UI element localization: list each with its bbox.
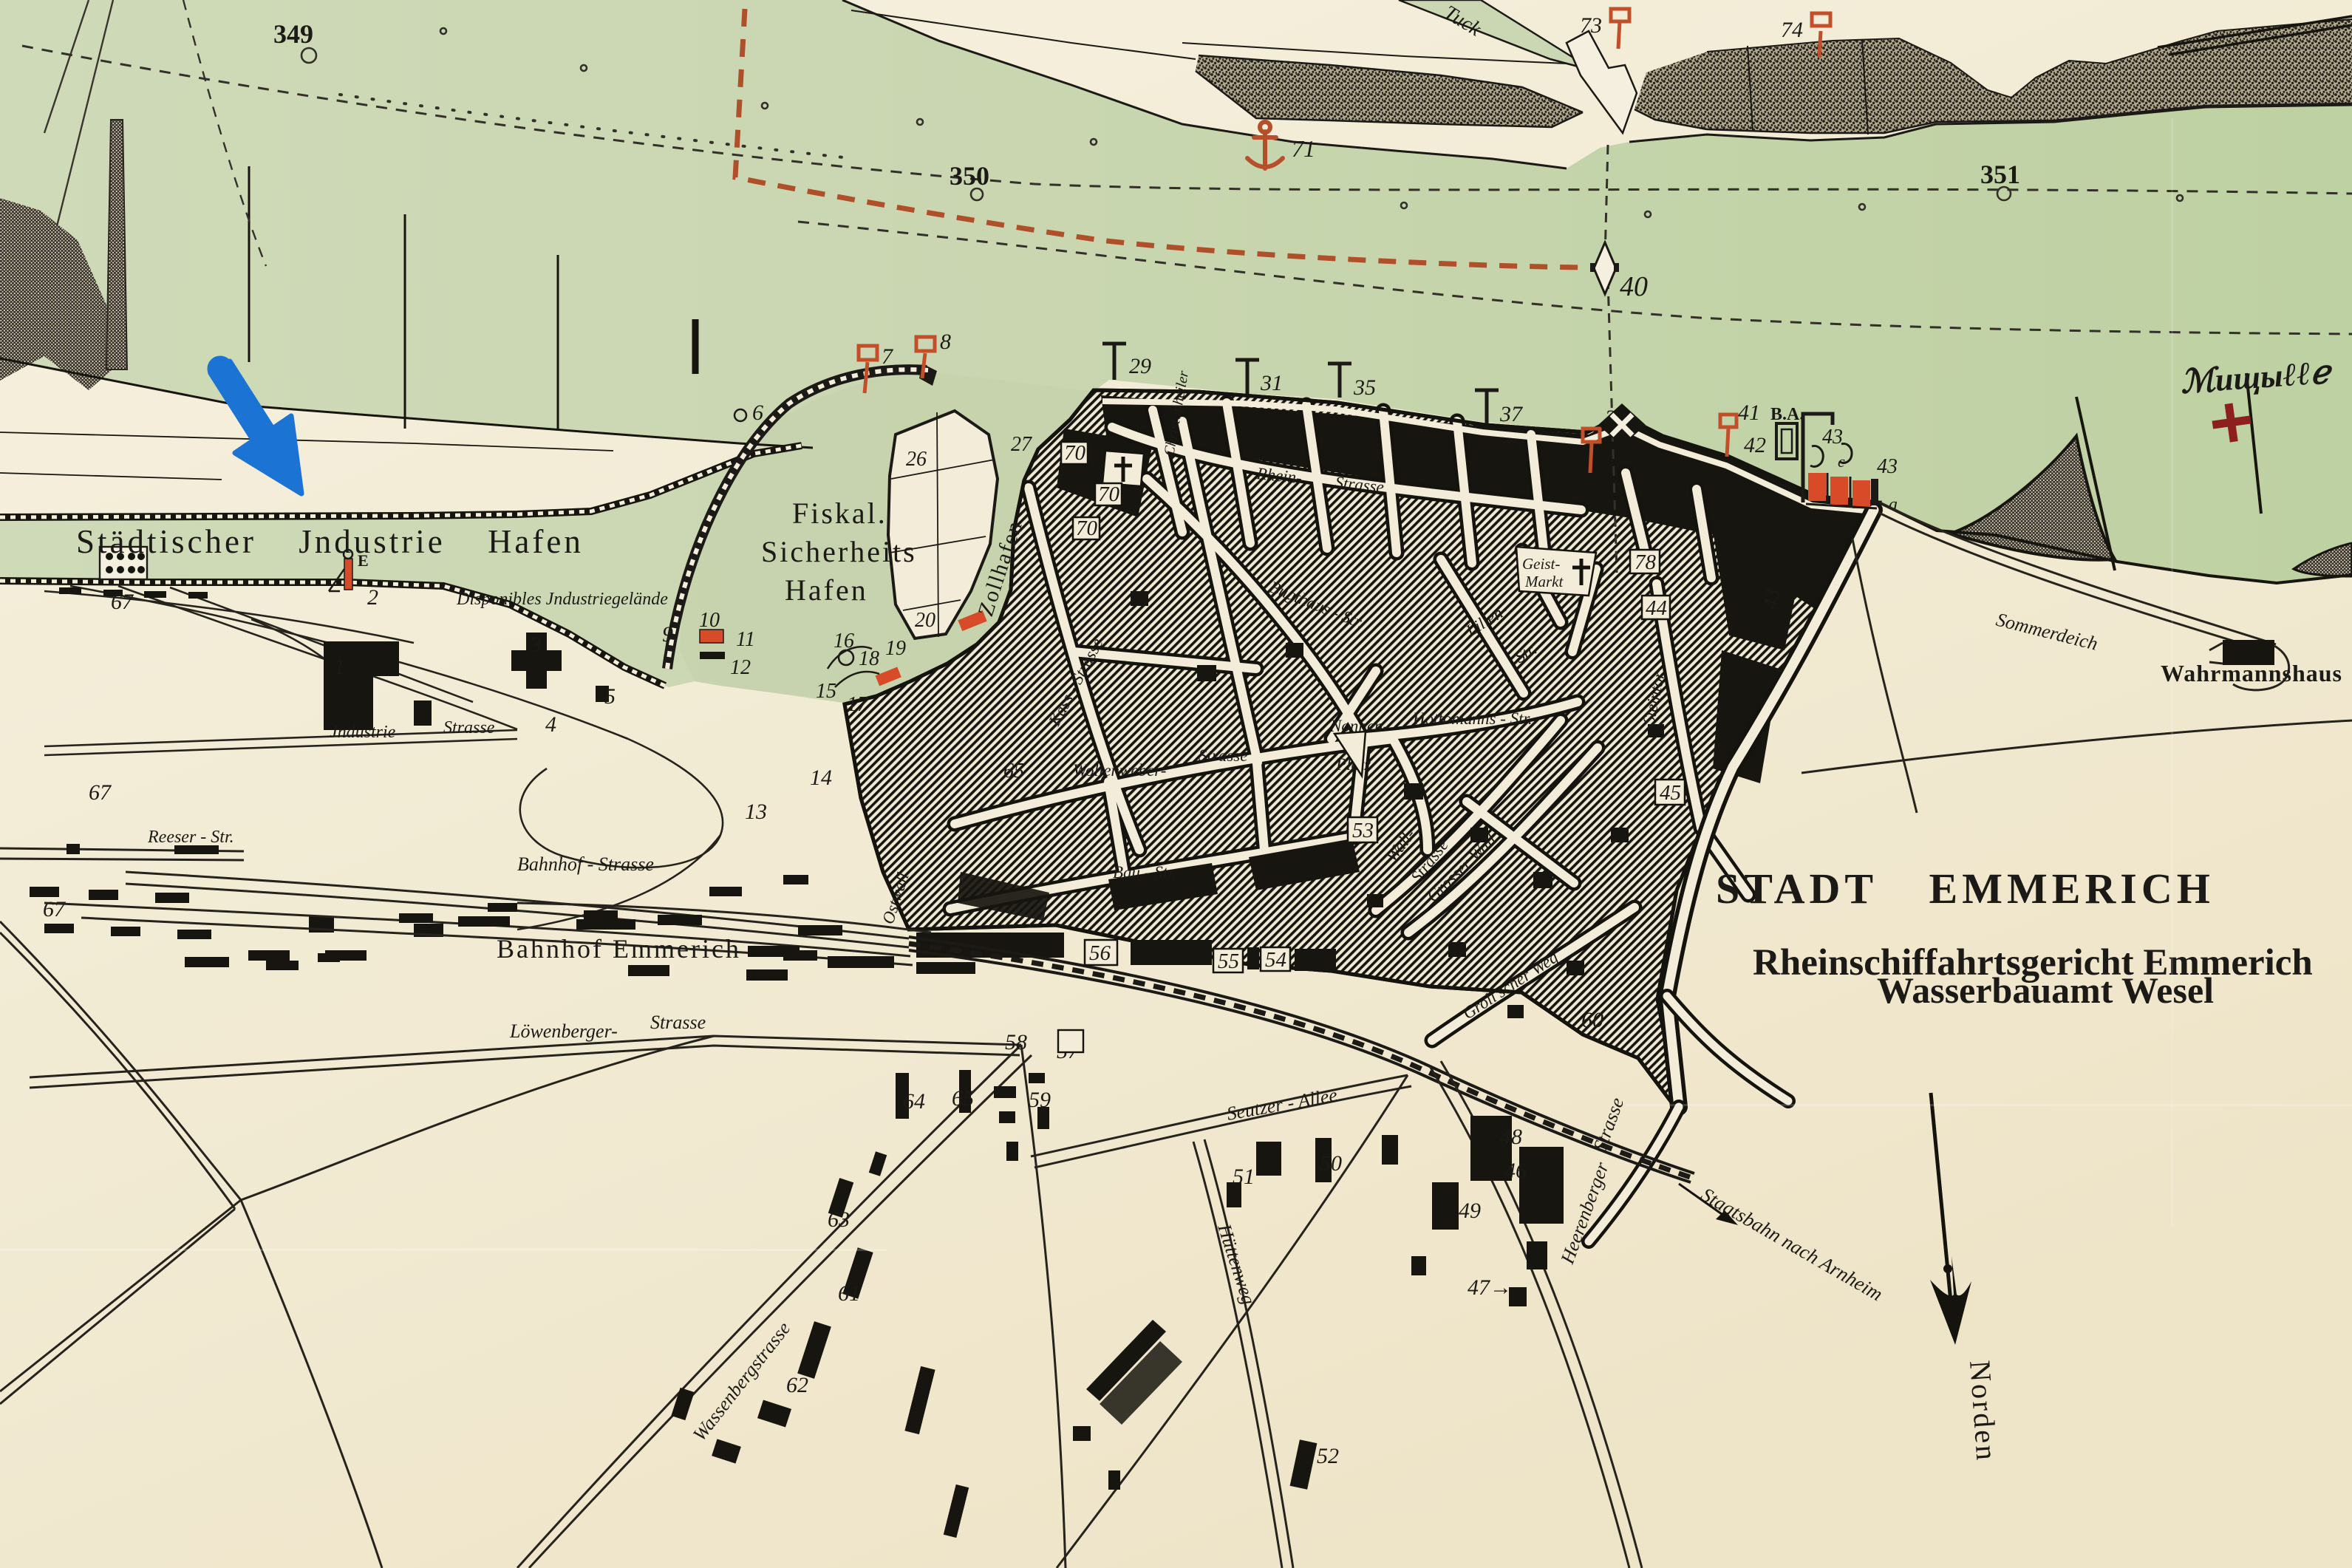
svg-text:12: 12 (730, 656, 751, 679)
svg-text:43: 43 (1877, 455, 1898, 478)
svg-text:60: 60 (1581, 1008, 1603, 1032)
svg-text:Sicherheits: Sicherheits (761, 535, 917, 568)
svg-text:26: 26 (906, 448, 927, 471)
svg-text:59: 59 (1029, 1088, 1051, 1112)
svg-text:B.A.: B.A. (1770, 405, 1804, 424)
svg-text:65: 65 (1003, 760, 1024, 783)
svg-text:67: 67 (89, 780, 112, 805)
svg-text:Löwenberger-: Löwenberger- (509, 1020, 618, 1042)
svg-text:15: 15 (816, 680, 836, 703)
svg-text:45: 45 (1660, 781, 1681, 805)
svg-text:50: 50 (1320, 1151, 1342, 1176)
svg-text:Markt: Markt (1524, 573, 1564, 590)
svg-text:46: 46 (1504, 1159, 1527, 1183)
svg-text:43: 43 (1759, 587, 1785, 611)
svg-text:62: 62 (786, 1373, 808, 1397)
svg-text:Norden: Norden (1963, 1359, 2004, 1463)
svg-text:Hafen: Hafen (785, 573, 868, 607)
svg-text:3: 3 (530, 633, 542, 657)
svg-text:4: 4 (545, 712, 556, 737)
svg-text:42: 42 (1744, 433, 1766, 457)
svg-text:1: 1 (334, 655, 345, 679)
svg-text:Disponibles Jndustriegelände: Disponibles Jndustriegelände (456, 590, 668, 609)
svg-text:11: 11 (736, 628, 755, 651)
svg-text:47→: 47→ (1468, 1275, 1512, 1300)
svg-text:27: 27 (1011, 433, 1032, 456)
svg-text:2: 2 (367, 585, 378, 610)
svg-text:Städtischer Jndustrie Hafen: Städtischer Jndustrie Hafen (76, 523, 584, 560)
svg-text:29: 29 (1129, 354, 1151, 378)
svg-text:52: 52 (1317, 1444, 1339, 1468)
svg-text:Bahnhof - Strasse: Bahnhof - Strasse (517, 853, 654, 875)
svg-text:55: 55 (1218, 950, 1239, 973)
svg-text:35: 35 (1353, 375, 1376, 400)
svg-text:48: 48 (1500, 1125, 1522, 1149)
svg-text:17: 17 (847, 693, 868, 716)
svg-text:Wollenweber-: Wollenweber- (1073, 761, 1166, 780)
svg-text:7: 7 (882, 344, 894, 369)
svg-text:350: 350 (950, 161, 989, 191)
svg-text:Strasse: Strasse (443, 718, 495, 737)
svg-text:Geist-: Geist- (1522, 555, 1560, 573)
svg-text:Strasse: Strasse (1199, 746, 1247, 765)
svg-text:Jndustrie: Jndustrie (330, 723, 396, 742)
svg-text:STADT EMMERICH: STADT EMMERICH (1716, 865, 2215, 913)
svg-text:Strasse: Strasse (650, 1012, 706, 1033)
svg-text:Fiskal.: Fiskal. (792, 497, 887, 530)
svg-text:51: 51 (1233, 1165, 1255, 1189)
svg-text:41: 41 (1738, 400, 1760, 425)
svg-text:10: 10 (699, 609, 720, 632)
svg-text:Wasserbauamt Wesel: Wasserbauamt Wesel (1877, 969, 2214, 1011)
svg-text:6: 6 (752, 400, 763, 425)
svg-text:c: c (1838, 452, 1845, 471)
svg-text:351: 351 (1980, 160, 2020, 189)
svg-text:63: 63 (828, 1207, 850, 1232)
svg-text:73: 73 (1580, 13, 1602, 38)
svg-text:67: 67 (43, 897, 67, 921)
svg-text:18: 18 (859, 647, 879, 670)
svg-text:8: 8 (940, 330, 951, 354)
svg-text:56: 56 (1089, 941, 1111, 965)
svg-text:31: 31 (1260, 371, 1283, 395)
svg-text:19: 19 (885, 637, 906, 660)
svg-text:13: 13 (745, 800, 767, 824)
svg-text:70: 70 (1098, 483, 1120, 506)
svg-text:14: 14 (810, 766, 832, 790)
svg-text:78: 78 (1635, 550, 1657, 574)
svg-text:43: 43 (1822, 426, 1843, 449)
svg-text:71: 71 (1292, 135, 1315, 162)
svg-text:67: 67 (111, 590, 134, 614)
svg-text:5: 5 (604, 684, 616, 709)
svg-text:40: 40 (1620, 271, 1648, 302)
svg-text:349: 349 (273, 19, 313, 49)
svg-text:61: 61 (838, 1281, 860, 1306)
svg-text:70: 70 (1064, 441, 1086, 465)
svg-text:54: 54 (1265, 948, 1286, 972)
svg-text:16: 16 (834, 630, 854, 652)
svg-text:58: 58 (1005, 1030, 1027, 1054)
svg-text:49: 49 (1459, 1199, 1481, 1223)
svg-text:74: 74 (1781, 18, 1803, 42)
svg-text:9: 9 (662, 622, 673, 647)
svg-text:64: 64 (903, 1089, 925, 1114)
svg-text:20: 20 (915, 609, 935, 632)
svg-text:65: 65 (952, 1086, 974, 1111)
svg-text:Bahnhof Emmerich: Bahnhof Emmerich (497, 934, 741, 964)
svg-text:53: 53 (1352, 819, 1374, 842)
svg-text:Reeser - Str.: Reeser - Str. (147, 828, 234, 847)
svg-text:70: 70 (1076, 517, 1098, 540)
svg-text:44: 44 (1646, 596, 1667, 620)
svg-text:Bau - Str.: Bau - Str. (1113, 863, 1176, 882)
svg-text:37: 37 (1499, 402, 1524, 426)
svg-text:Wahrmannshaus: Wahrmannshaus (2161, 660, 2342, 686)
svg-text:Hottomanns - Str.: Hottomanns - Str. (1412, 709, 1533, 728)
